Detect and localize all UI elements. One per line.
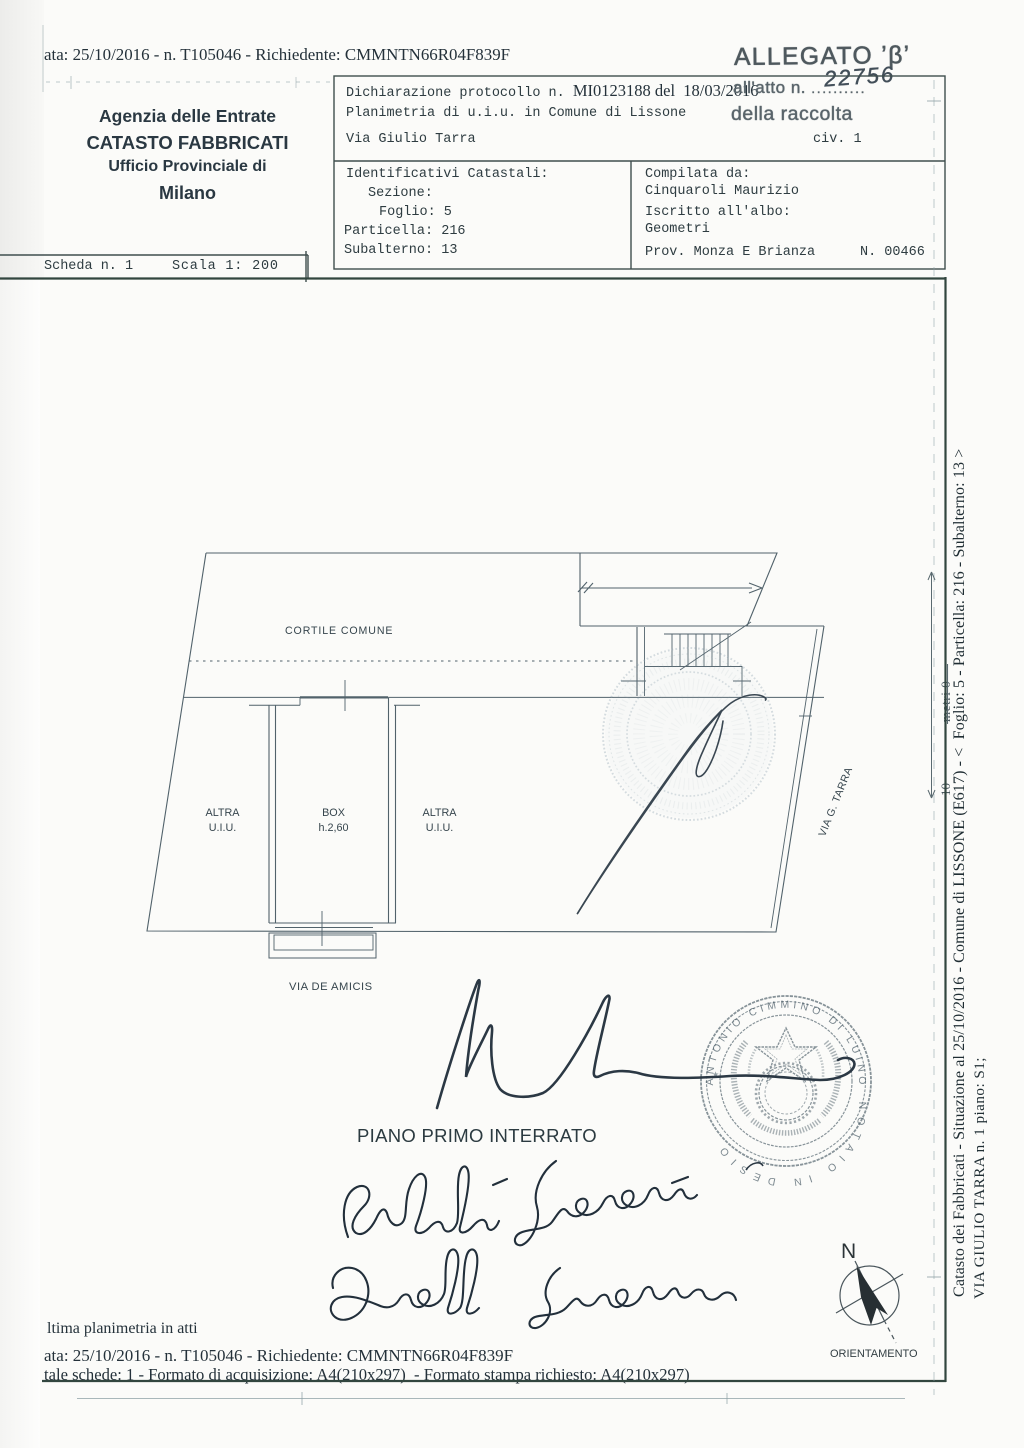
svg-text:ANTONIO CIMMINO DI LUINO: ANTONIO CIMMINO DI LUINO — [704, 999, 868, 1086]
svg-text:NOTAIO IN DESIO: NOTAIO IN DESIO — [717, 1102, 868, 1189]
